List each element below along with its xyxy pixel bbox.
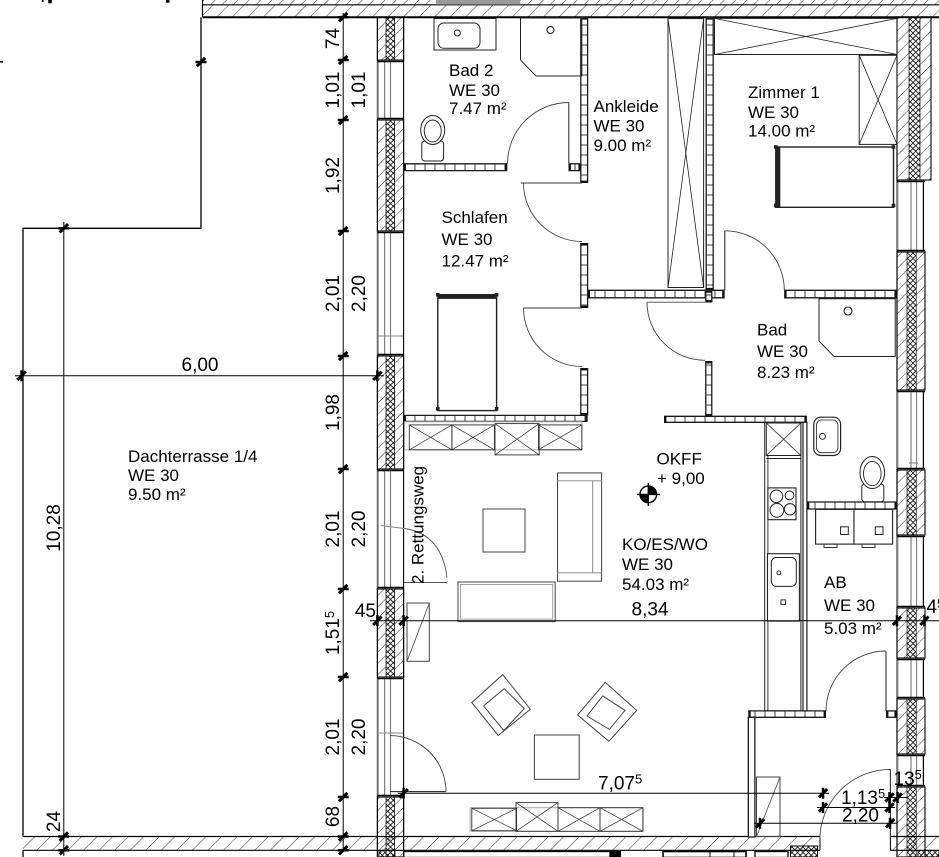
svg-text:2,20: 2,20 (349, 719, 370, 756)
svg-text:2,01: 2,01 (323, 719, 344, 756)
svg-text:2,01: 2,01 (323, 275, 344, 312)
svg-text:9.50 m²: 9.50 m² (128, 485, 186, 504)
svg-text:1,01: 1,01 (349, 72, 370, 109)
svg-text:6,00: 6,00 (182, 355, 219, 376)
svg-text:+ 9,00: + 9,00 (657, 469, 705, 488)
svg-text:68: 68 (323, 806, 344, 827)
svg-text:2,20: 2,20 (349, 511, 370, 548)
svg-text:Ankleide: Ankleide (594, 97, 659, 116)
svg-text:Schlafen: Schlafen (442, 208, 508, 227)
svg-text:Dachterrasse 1/4: Dachterrasse 1/4 (128, 447, 257, 466)
svg-text:OKFF: OKFF (657, 450, 702, 469)
svg-text:5.03 m²: 5.03 m² (824, 619, 882, 638)
svg-text:8.23 m²: 8.23 m² (757, 363, 815, 382)
svg-text:WE 30: WE 30 (622, 555, 673, 574)
svg-text:WE 30: WE 30 (449, 81, 500, 100)
svg-text:WE 30: WE 30 (757, 342, 808, 361)
svg-text:WE 30: WE 30 (128, 466, 179, 485)
svg-text:45: 45 (355, 601, 376, 622)
svg-text:2. Rettungsweg: 2. Rettungsweg (409, 466, 428, 584)
svg-text:1,01: 1,01 (323, 72, 344, 109)
svg-text:74: 74 (323, 28, 344, 50)
svg-text:14.00 m²: 14.00 m² (748, 122, 815, 141)
svg-text:WE 30: WE 30 (748, 103, 799, 122)
svg-text:2,20: 2,20 (349, 275, 370, 312)
svg-text:Bad: Bad (757, 321, 787, 340)
svg-text:WE 30: WE 30 (442, 230, 493, 249)
svg-text:AB: AB (824, 573, 847, 592)
svg-text:8,34: 8,34 (632, 600, 669, 621)
svg-text:12.47 m²: 12.47 m² (442, 252, 509, 271)
svg-text:WE 30: WE 30 (824, 596, 875, 615)
svg-text:2,20: 2,20 (842, 806, 879, 827)
svg-text:2,01: 2,01 (323, 511, 344, 548)
svg-text:7.47 m²: 7.47 m² (449, 99, 507, 118)
svg-text:Bad 2: Bad 2 (449, 61, 493, 80)
svg-text:KO/ES/WO: KO/ES/WO (622, 535, 708, 554)
svg-text:24: 24 (44, 811, 65, 833)
svg-text:1,98: 1,98 (323, 394, 344, 431)
svg-text:Zimmer 1: Zimmer 1 (748, 83, 820, 102)
svg-text:54.03 m²: 54.03 m² (622, 575, 689, 594)
svg-text:WE 30: WE 30 (594, 117, 645, 136)
svg-text:10,28: 10,28 (44, 504, 65, 552)
svg-text:9.00 m²: 9.00 m² (594, 136, 652, 155)
svg-text:1,92: 1,92 (323, 157, 344, 194)
